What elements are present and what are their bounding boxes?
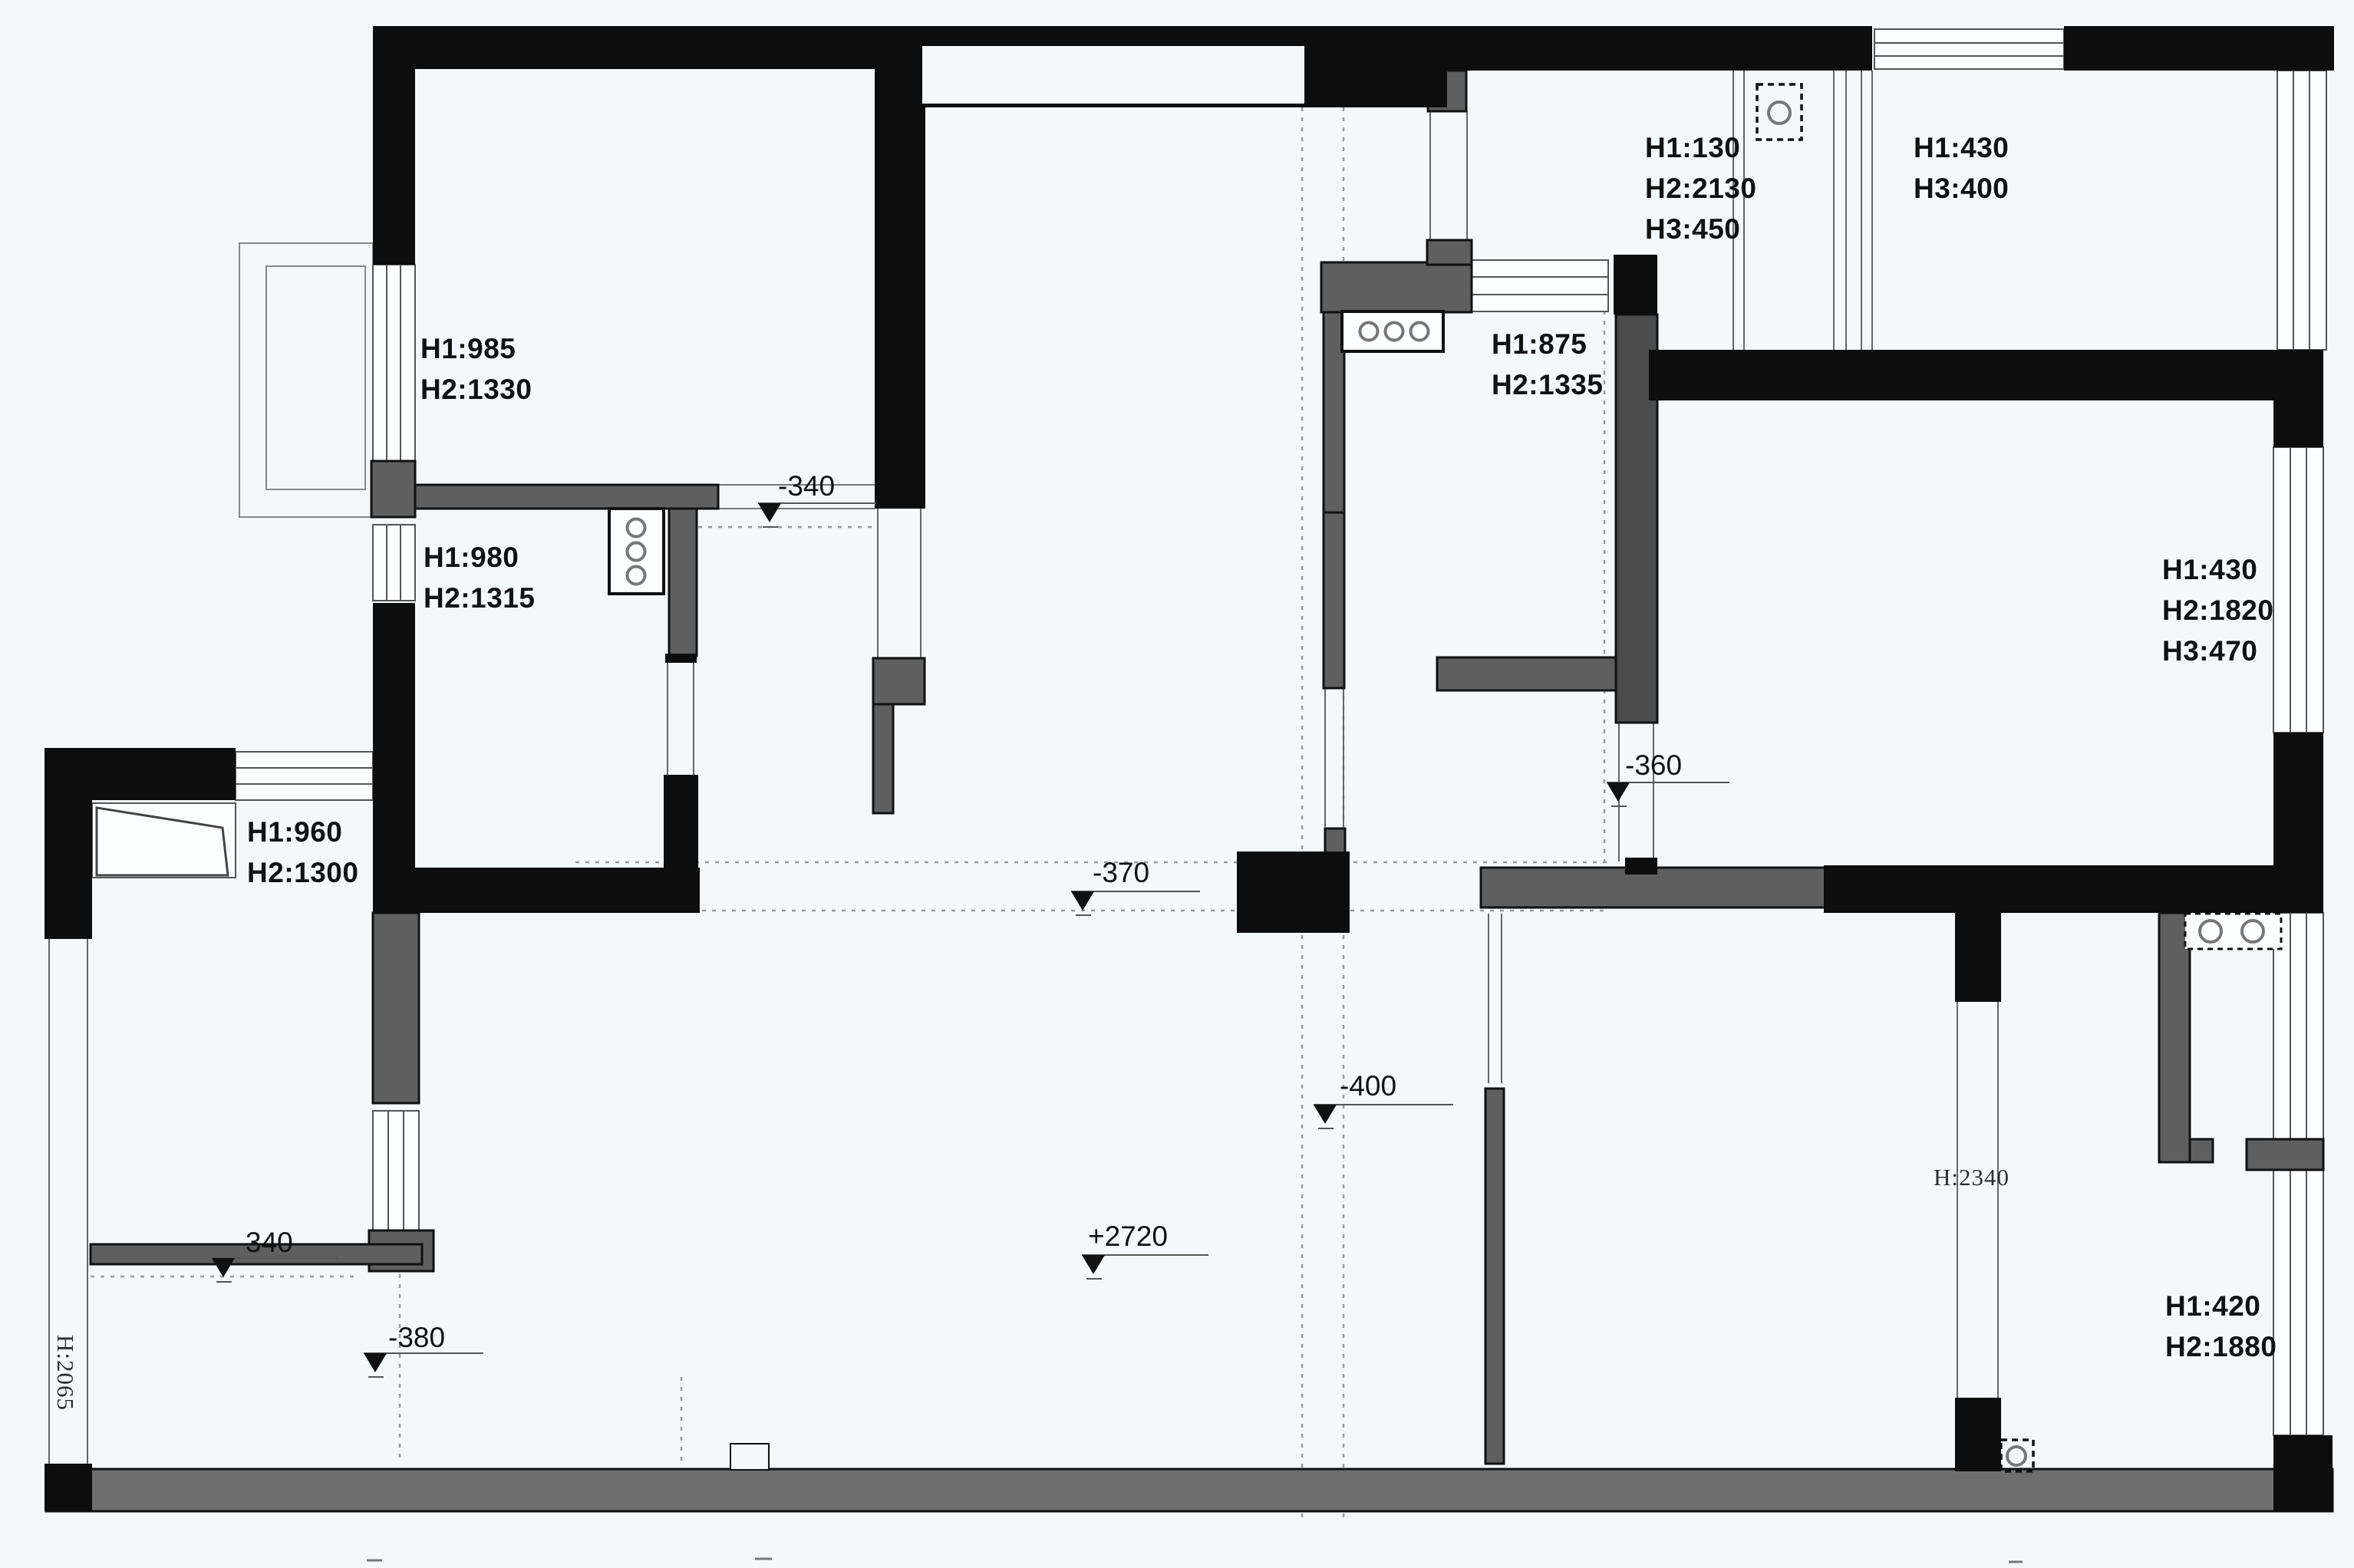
- top-wall-opening: [922, 46, 1304, 104]
- gray-wall: [373, 913, 419, 1103]
- gray-wall: [669, 509, 697, 656]
- gray-wall: [415, 485, 718, 509]
- gray-wall: [2247, 1139, 2323, 1170]
- black-wall: [45, 748, 236, 800]
- window: [2273, 447, 2323, 733]
- stove-3-burner-vertical: [609, 509, 664, 594]
- black-wall: [1625, 858, 1657, 875]
- level-marker: [364, 1353, 483, 1377]
- window: [373, 265, 415, 463]
- window: [2273, 1170, 2323, 1435]
- window: [236, 752, 373, 800]
- opening-edge-lines: [718, 485, 875, 509]
- black-wall: [665, 654, 697, 663]
- black-walls-layer: [45, 26, 2334, 1512]
- drain-box-top: [1757, 84, 1802, 140]
- gray-wall: [1321, 262, 1472, 312]
- black-wall: [1447, 26, 1872, 71]
- black-wall: [875, 26, 925, 509]
- black-wall: [373, 868, 700, 913]
- window: [373, 525, 415, 601]
- black-wall: [1955, 1398, 2001, 1471]
- floor-plan-canvas: H1:985 H2:1330H1:980 H2:1315H1:960 H2:13…: [0, 0, 2354, 1568]
- gray-wall: [873, 658, 925, 704]
- gray-wall: [873, 704, 893, 813]
- black-wall: [2273, 1435, 2333, 1512]
- black-wall-pillar: [1237, 852, 1350, 933]
- floor-plan-drawing: [0, 0, 2354, 1568]
- slab-edge-band: [46, 1469, 2333, 1511]
- level-marker: [758, 503, 876, 527]
- drain-circle-top: [1769, 102, 1790, 124]
- gray-wall: [1324, 512, 1344, 688]
- bay-window-inner-frame: [266, 266, 365, 489]
- black-wall: [1614, 255, 1657, 315]
- gray-wall: [1485, 1089, 1504, 1464]
- gray-wall: [91, 1244, 422, 1264]
- black-wall: [1649, 350, 2323, 400]
- black-wall: [1824, 865, 2323, 913]
- level-marker: [1071, 891, 1200, 915]
- level-marker: [1314, 1105, 1453, 1128]
- level-marker: [1607, 782, 1729, 806]
- black-wall: [373, 603, 415, 873]
- level-marker: [1082, 1255, 1208, 1279]
- bay-window-outer-frame: [239, 243, 373, 517]
- drain-circle-bottom: [2007, 1447, 2026, 1465]
- page-ticks: [367, 1559, 2023, 1562]
- gray-wall: [2190, 1139, 2213, 1162]
- passage-openings: [49, 509, 1998, 1464]
- black-wall: [373, 26, 415, 265]
- black-wall: [664, 775, 698, 868]
- threshold-notch: [730, 1444, 769, 1470]
- window: [2277, 71, 2326, 350]
- black-wall: [2273, 350, 2323, 447]
- black-wall: [45, 1464, 92, 1511]
- gray-wall: [2159, 913, 2190, 1162]
- gray-wall: [371, 461, 415, 517]
- gray-wall: [1427, 240, 1472, 265]
- window: [373, 1111, 419, 1230]
- window: [1472, 260, 1608, 311]
- window: [1874, 29, 2064, 69]
- gray-wall: [1325, 828, 1345, 853]
- black-wall: [373, 26, 925, 69]
- black-wall: [1955, 865, 2001, 1002]
- black-wall: [2064, 26, 2334, 71]
